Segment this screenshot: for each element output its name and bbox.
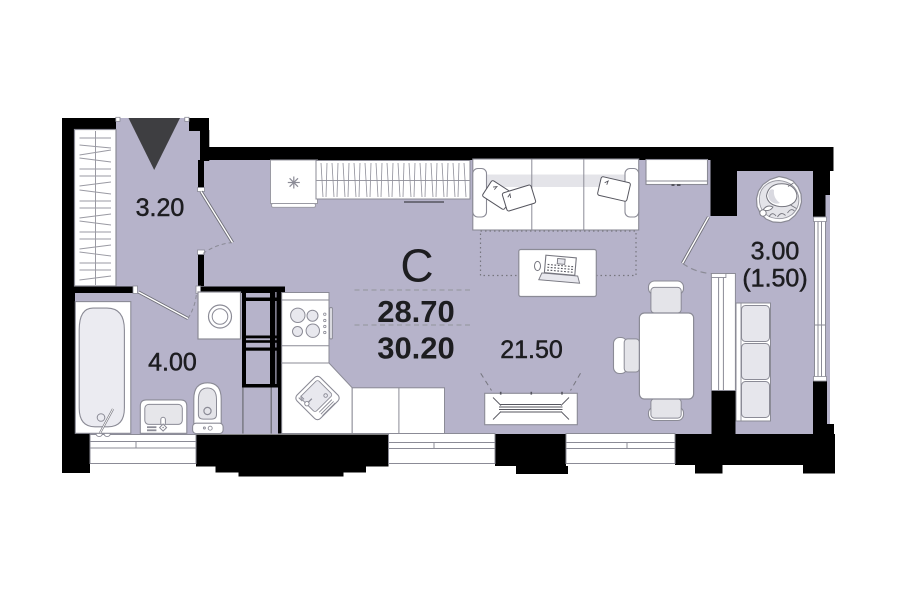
svg-text:C: C bbox=[400, 240, 433, 292]
svg-text:3.20: 3.20 bbox=[136, 194, 185, 222]
svg-text:30.20: 30.20 bbox=[377, 331, 455, 366]
svg-text:28.70: 28.70 bbox=[377, 294, 455, 329]
svg-text:3.00: 3.00 bbox=[751, 238, 800, 266]
svg-text:4.00: 4.00 bbox=[148, 349, 197, 377]
svg-text:(1.50): (1.50) bbox=[742, 265, 807, 293]
svg-text:21.50: 21.50 bbox=[500, 336, 563, 364]
